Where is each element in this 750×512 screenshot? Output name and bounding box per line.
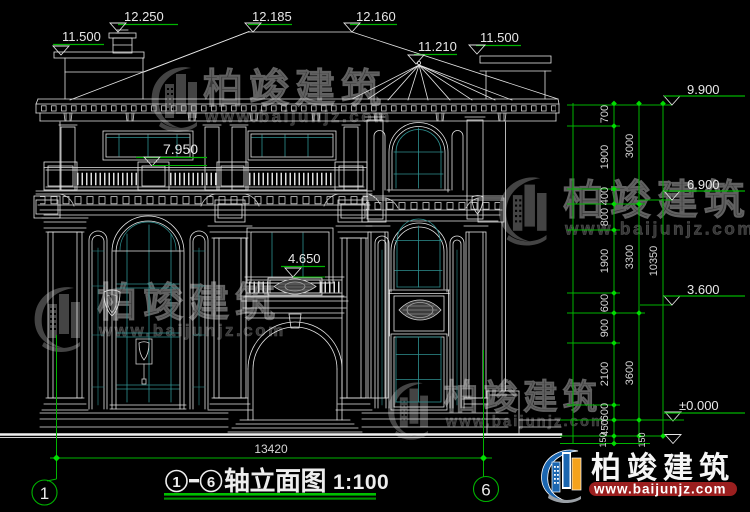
svg-text:3000: 3000 [624, 134, 636, 158]
svg-text:12.160: 12.160 [356, 9, 396, 24]
svg-text:12.185: 12.185 [252, 9, 292, 24]
svg-text:700: 700 [599, 105, 611, 123]
svg-text:11.210: 11.210 [418, 39, 457, 54]
svg-text:6.900: 6.900 [687, 177, 720, 192]
svg-text:2100: 2100 [599, 362, 611, 386]
svg-text:6: 6 [207, 474, 215, 491]
svg-text:600: 600 [599, 294, 611, 312]
svg-text:12.250: 12.250 [124, 9, 164, 24]
svg-text:800: 800 [599, 208, 611, 226]
svg-text:11.500: 11.500 [480, 30, 519, 45]
svg-text:13420: 13420 [254, 442, 288, 456]
svg-text:150: 150 [637, 432, 647, 447]
svg-text:900: 900 [599, 319, 611, 337]
svg-text:9.900: 9.900 [687, 82, 720, 97]
svg-text:1900: 1900 [599, 249, 611, 273]
svg-text:10350: 10350 [648, 246, 660, 277]
svg-text:3600: 3600 [624, 361, 636, 385]
svg-text:11.500: 11.500 [62, 29, 101, 44]
svg-text:3300: 3300 [624, 245, 636, 269]
svg-text:4.650: 4.650 [288, 251, 321, 266]
svg-text:1:100: 1:100 [333, 471, 389, 494]
svg-text:150: 150 [598, 432, 608, 447]
svg-text:柏竣建筑: 柏竣建筑 [591, 451, 735, 485]
svg-text:1: 1 [172, 474, 180, 491]
svg-text:6: 6 [481, 481, 490, 500]
svg-text:400: 400 [599, 187, 611, 205]
svg-text:www.baijunjz.com: www.baijunjz.com [593, 482, 727, 497]
svg-text:轴立面图: 轴立面图 [224, 466, 326, 496]
svg-text:1: 1 [40, 484, 49, 503]
svg-text:3.600: 3.600 [687, 282, 720, 297]
svg-text:±0.000: ±0.000 [679, 398, 719, 413]
svg-text:1900: 1900 [599, 145, 611, 169]
svg-text:600: 600 [599, 403, 611, 421]
svg-text:7.950: 7.950 [163, 141, 198, 157]
